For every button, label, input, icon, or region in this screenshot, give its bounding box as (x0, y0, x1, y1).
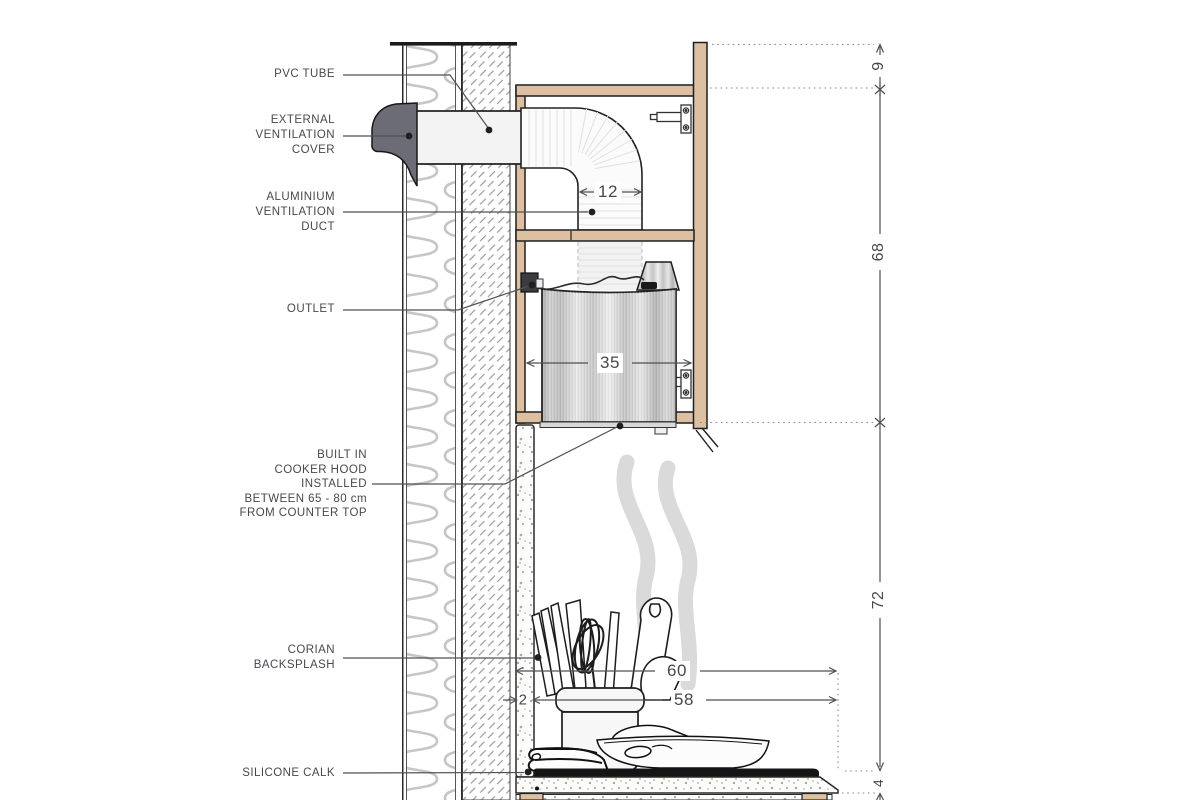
dim-tick-star (875, 416, 885, 429)
dim-duct-width: 12 (595, 182, 621, 202)
external-ventilation-cover (372, 103, 417, 186)
cabinet-shelf (516, 230, 694, 241)
serving-dish (597, 725, 769, 768)
ceiling-cut-line (390, 42, 517, 46)
dim-top-gap: 9 (870, 61, 888, 70)
label-built-in-cooker-hood: BUILT IN COOKER HOOD INSTALLED BETWEEN 6… (239, 448, 367, 521)
door-break-mark (702, 428, 718, 447)
label-aluminium-ventilation-duct: ALUMINIUM VENTILATION DUCT (256, 190, 336, 235)
dim-hood-to-counter: 72 (870, 591, 888, 610)
dim-counter-depth: 60 (664, 661, 690, 681)
drawing-linework (0, 0, 1200, 800)
label-corian-backsplash: CORIAN BACKSPLASH (254, 643, 335, 673)
section-drawing: PVC TUBE EXTERNAL VENTILATION COVER ALUM… (0, 0, 1200, 800)
leader-silicone (343, 773, 524, 774)
label-silicone-calk: SILICONE CALK (242, 766, 335, 781)
label-pvc-tube: PVC TUBE (274, 67, 335, 82)
countertop (516, 777, 838, 793)
dim-upper-cabinet-height: 68 (870, 243, 888, 262)
dim-tick-star (875, 83, 885, 96)
induction-hob (534, 769, 819, 778)
dim-backsplash-thickness: 2 (518, 692, 529, 709)
hood-motor-foot (641, 282, 657, 289)
door-break-mark (696, 430, 713, 452)
pvc-tube (415, 111, 525, 164)
corian-backsplash (516, 425, 534, 777)
hinge-icon-top (651, 105, 692, 133)
hood-bottom-strip (540, 422, 676, 428)
fixing-dot (535, 787, 539, 791)
cabinet-leg-right (802, 794, 827, 800)
cabinet-top-rail (516, 85, 694, 96)
cabinet-leg-left (520, 794, 543, 800)
label-outlet: OUTLET (287, 302, 335, 317)
extension-lines (700, 45, 876, 794)
utensil-handle (604, 612, 619, 696)
label-external-ventilation-cover: EXTERNAL VENTILATION COVER (256, 113, 336, 158)
flexible-duct (578, 242, 642, 290)
dim-hob-depth: 58 (671, 690, 697, 710)
dim-counter-thickness: 4 (870, 777, 886, 789)
counter-substrate (516, 795, 832, 800)
cabinet-side-panel (694, 43, 708, 429)
hood-switch (655, 428, 667, 435)
dim-hood-width: 35 (597, 353, 623, 373)
